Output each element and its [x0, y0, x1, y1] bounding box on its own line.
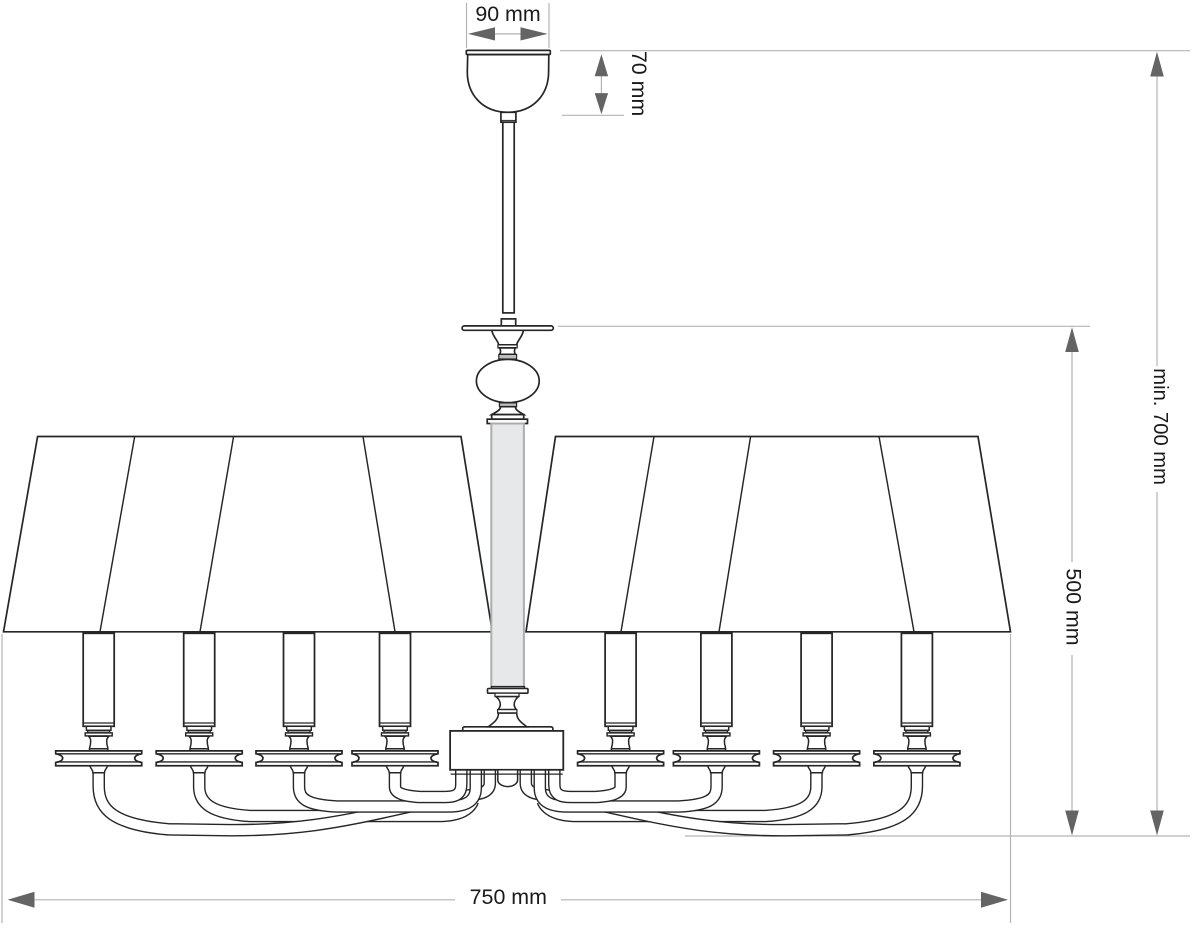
svg-text:90 mm: 90 mm [475, 2, 540, 26]
svg-text:750 mm: 750 mm [470, 885, 547, 909]
svg-text:min. 700 mm: min. 700 mm [1149, 368, 1171, 485]
svg-text:70 mm: 70 mm [627, 51, 651, 116]
svg-text:500 mm: 500 mm [1061, 568, 1085, 645]
